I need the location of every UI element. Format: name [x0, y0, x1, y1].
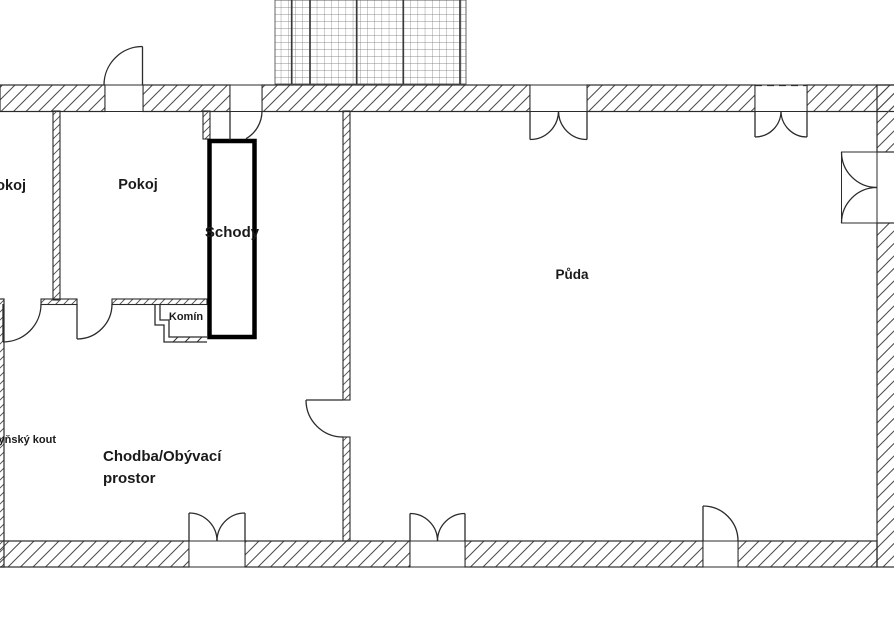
label-kitchen-corner: Kuchyňský kout	[0, 434, 56, 446]
label-hall-line1: Chodba/Obývací	[103, 448, 222, 465]
terrace-grid	[275, 0, 466, 84]
label-stairs: Schody	[205, 224, 260, 241]
label-room-center: Pokoj	[118, 177, 157, 193]
label-chimney: Komín	[169, 311, 204, 323]
window-right	[842, 152, 878, 223]
floor-plan-page: Pokoj Pokoj Schody Komín Půda Kuchyňský …	[0, 0, 894, 625]
label-attic: Půda	[555, 267, 588, 282]
floor-plan-drawing: Pokoj Pokoj Schody Komín Půda Kuchyňský …	[0, 0, 894, 625]
label-hall-line2: prostor	[103, 470, 156, 487]
label-room-left: Pokoj	[0, 178, 26, 194]
